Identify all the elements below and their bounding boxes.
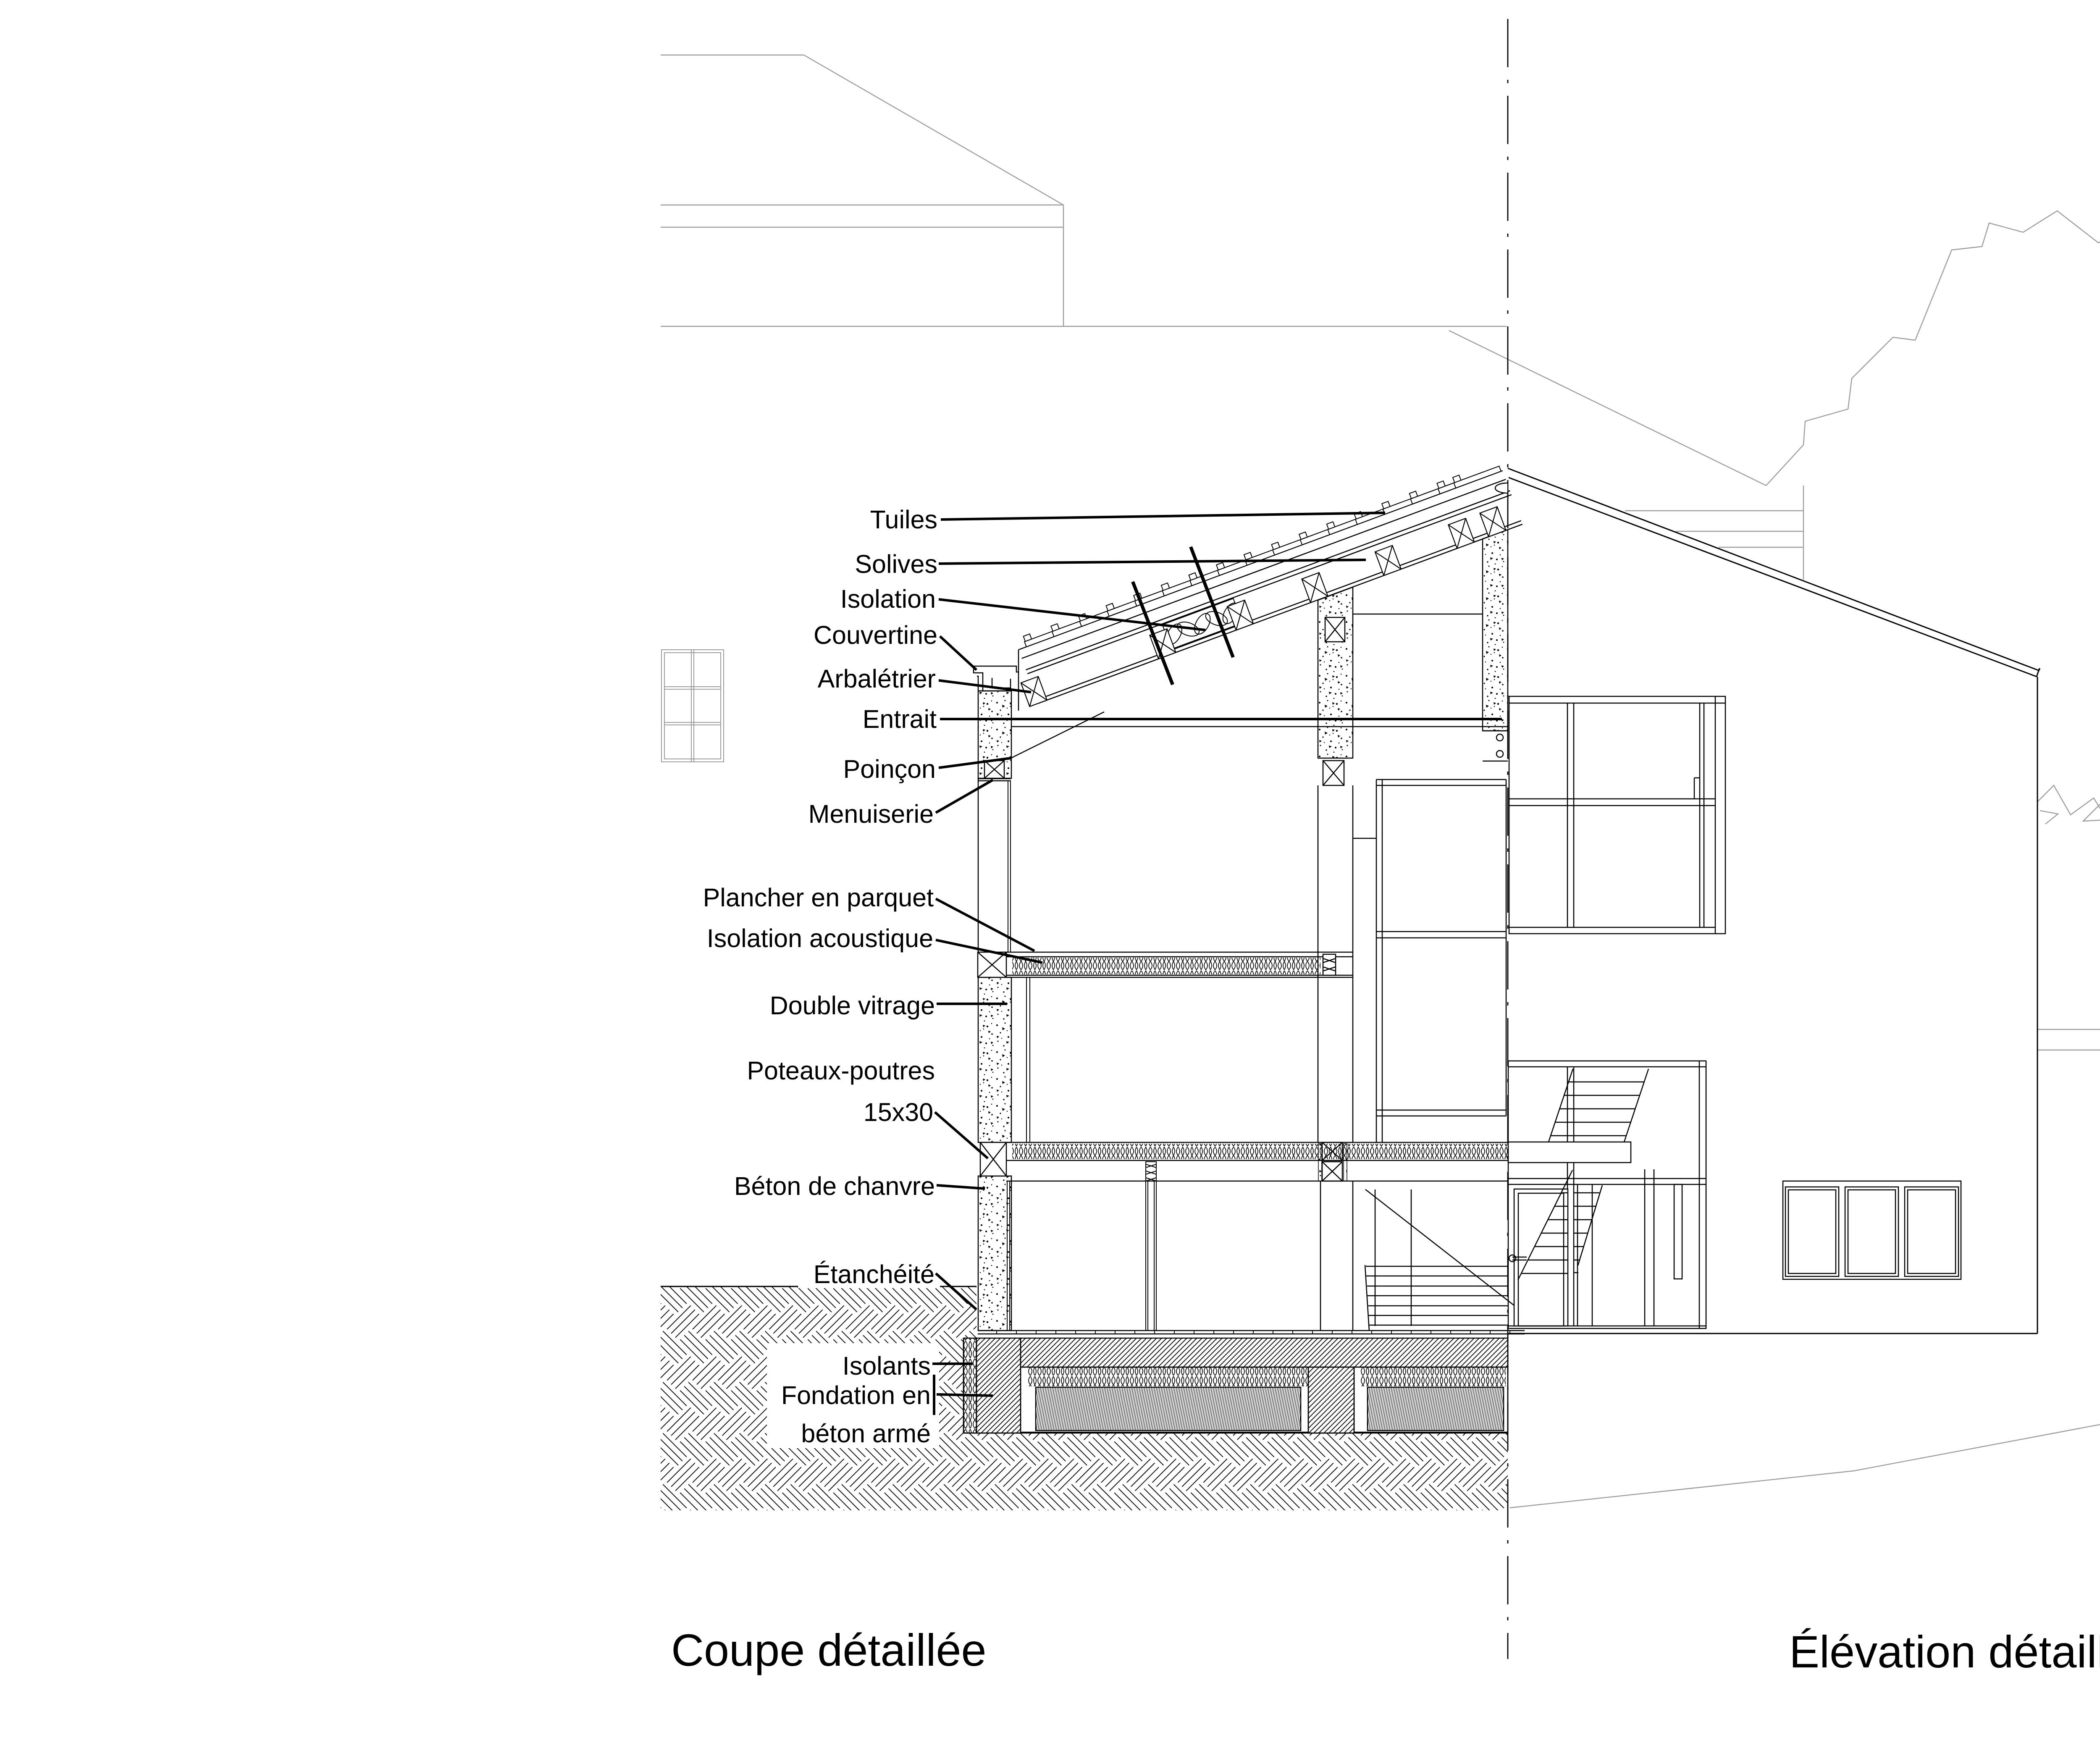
svg-text:Élévation détaillée façade: Élévation détaillée façade xyxy=(1789,1626,2100,1677)
svg-text:Entrait: Entrait xyxy=(863,705,937,733)
svg-text:Tuiles: Tuiles xyxy=(870,505,937,534)
svg-text:Isolation: Isolation xyxy=(840,585,936,613)
svg-text:Poteaux-poutres: Poteaux-poutres xyxy=(747,1056,935,1085)
svg-text:Couvertine: Couvertine xyxy=(814,621,937,649)
svg-text:Menuiserie: Menuiserie xyxy=(808,800,934,828)
svg-text:béton armé: béton armé xyxy=(801,1419,931,1448)
svg-text:Coupe détaillée: Coupe détaillée xyxy=(671,1625,987,1675)
svg-text:Arbalétrier: Arbalétrier xyxy=(818,664,936,693)
svg-text:Solives: Solives xyxy=(855,550,937,578)
svg-text:Plancher en parquet: Plancher en parquet xyxy=(703,883,934,912)
svg-text:Isolation acoustique: Isolation acoustique xyxy=(707,924,933,953)
svg-text:Béton de chanvre: Béton de chanvre xyxy=(734,1172,935,1200)
svg-text:Fondation en: Fondation en xyxy=(781,1381,931,1410)
svg-text:Poinçon: Poinçon xyxy=(843,755,936,783)
svg-text:Double vitrage: Double vitrage xyxy=(770,991,935,1020)
svg-text:15x30: 15x30 xyxy=(864,1098,933,1126)
svg-text:Étanchéité: Étanchéité xyxy=(814,1260,934,1289)
svg-text:Isolants: Isolants xyxy=(843,1352,931,1380)
